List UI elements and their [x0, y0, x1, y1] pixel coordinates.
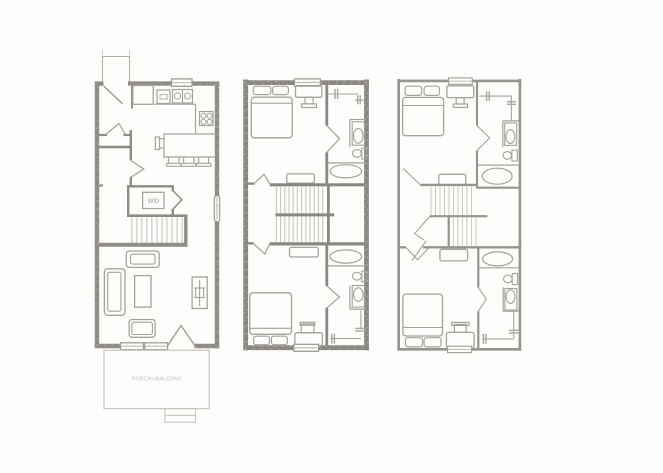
svg-text:W/D: W/D: [148, 199, 160, 205]
svg-text:PORCH+/BALCONY: PORCH+/BALCONY: [132, 377, 182, 383]
